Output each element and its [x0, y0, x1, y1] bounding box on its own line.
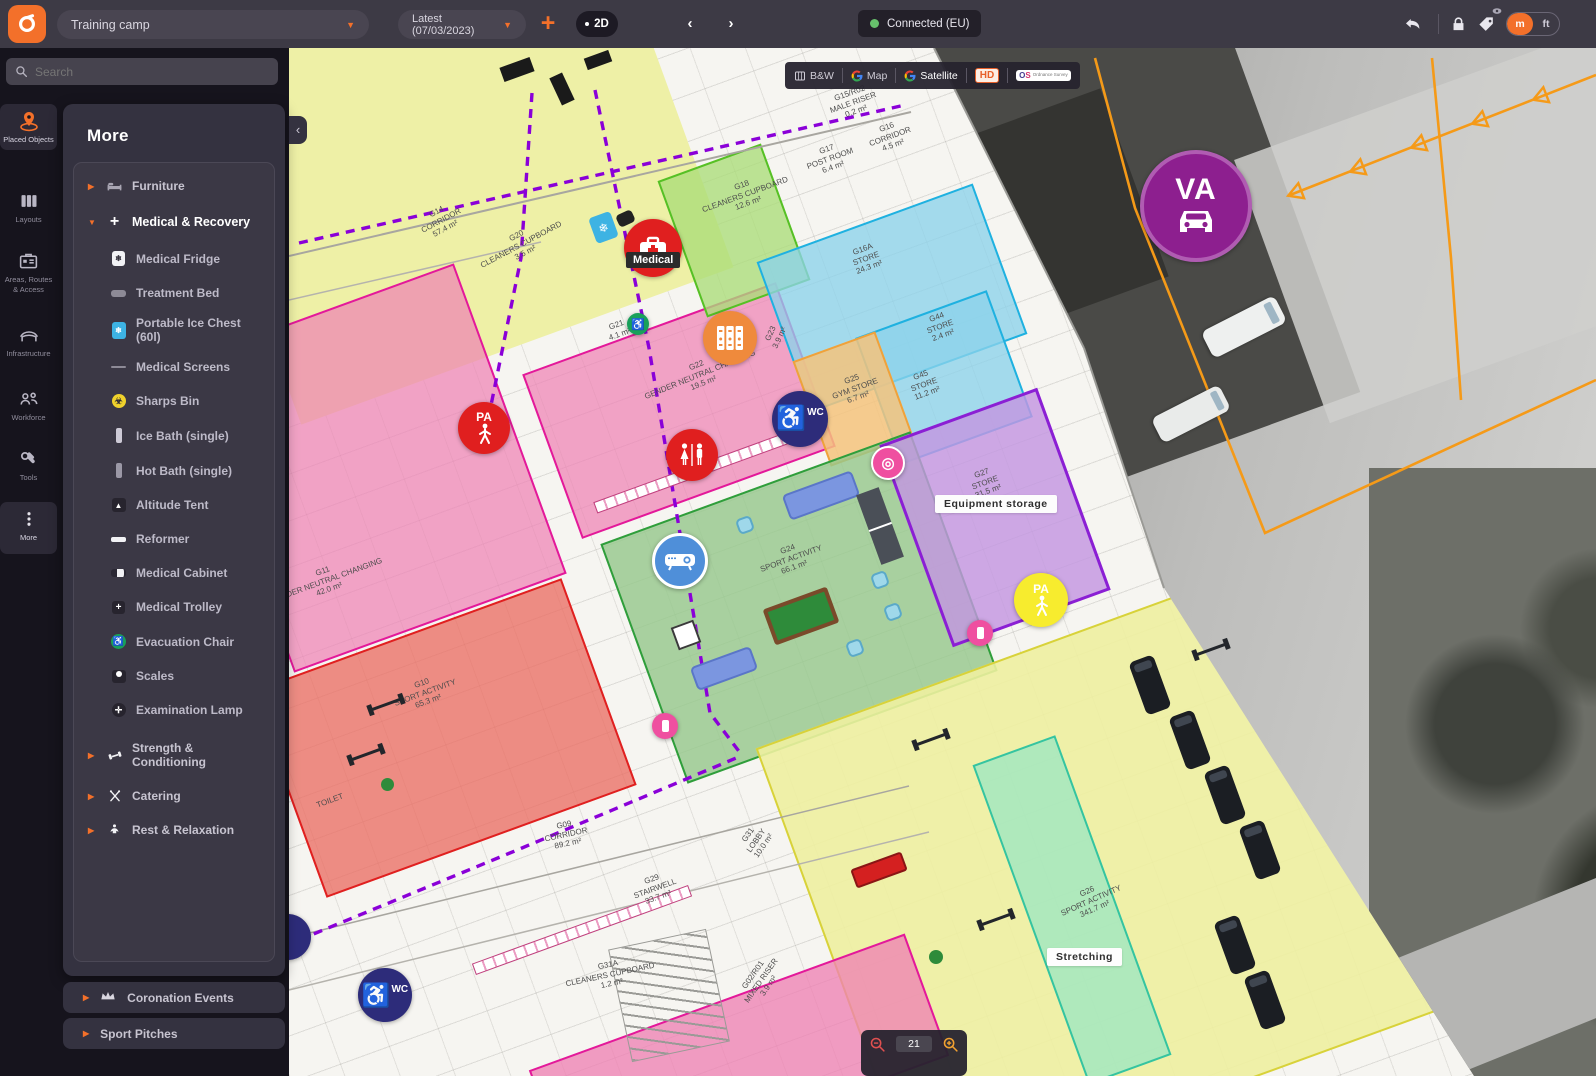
add-version-button[interactable]: +: [534, 8, 562, 38]
undo-icon: [1404, 15, 1423, 34]
item-medical-cabinet[interactable]: Medical Cabinet: [74, 556, 274, 590]
item-label: Sharps Bin: [136, 394, 199, 408]
layer-hd-button[interactable]: HD: [975, 68, 999, 83]
category-rest-relaxation[interactable]: ▶ Rest & Relaxation: [74, 813, 274, 847]
item-altitude-tent[interactable]: ▲ Altitude Tent: [74, 488, 274, 522]
item-examination-lamp[interactable]: ✛ Examination Lamp: [74, 693, 274, 727]
panel-title: More: [87, 126, 285, 146]
expand-arrow-icon[interactable]: ▶: [88, 792, 97, 801]
connection-status: Connected (EU): [858, 10, 981, 37]
layer-bw-button[interactable]: B&W: [794, 70, 834, 82]
oneplan-logo-icon: [16, 13, 38, 35]
pa-label: PA: [476, 411, 492, 423]
toilet-point-icon-small[interactable]: [967, 620, 993, 646]
sidebar-item-placed-objects[interactable]: Placed Objects: [0, 104, 57, 150]
rail-label: Placed Objects: [2, 135, 55, 145]
history-back-button[interactable]: ‹: [678, 12, 702, 36]
category-coronation-events[interactable]: ▶ Coronation Events: [63, 982, 285, 1013]
badge-card-icon: [2, 249, 55, 273]
item-label: Examination Lamp: [136, 703, 243, 717]
category-medical-recovery[interactable]: ▼ + Medical & Recovery: [74, 203, 274, 241]
pa-point-icon-red[interactable]: PA: [458, 402, 510, 454]
google-icon: [904, 70, 916, 82]
shower-point-icon[interactable]: ◎: [871, 446, 905, 480]
map-canvas[interactable]: G14 CORRIDOR 57.4 m² G20 CLEANERS CUPBOA…: [289, 48, 1596, 1076]
search-bar[interactable]: [6, 58, 278, 85]
item-medical-trolley[interactable]: + Medical Trolley: [74, 590, 274, 624]
bw-map-icon: [794, 70, 806, 82]
accessible-wc-point-icon-2[interactable]: ♿ WC: [358, 968, 412, 1022]
category-label: Rest & Relaxation: [132, 823, 234, 837]
rail-label: Workforce: [2, 413, 55, 423]
divider: [842, 68, 843, 83]
project-select[interactable]: Training camp ▼: [57, 10, 369, 39]
utensils-icon: [106, 789, 123, 803]
divider: [1007, 68, 1008, 83]
rail-label: Infrastructure: [2, 349, 55, 359]
unit-toggle[interactable]: m ft: [1506, 12, 1560, 36]
wheelchair-icon: ♿: [776, 407, 806, 431]
project-select-value: Training camp: [71, 18, 150, 32]
version-select[interactable]: Latest (07/03/2023) ▼: [398, 10, 526, 39]
map-pin-icon: [2, 109, 55, 133]
wc-label: WC: [807, 407, 824, 418]
chevron-down-icon: ▼: [346, 20, 355, 30]
sidebar-item-infrastructure[interactable]: Infrastructure: [0, 318, 57, 364]
item-sharps-bin[interactable]: ☣ Sharps Bin: [74, 384, 274, 418]
item-portable-ice-chest[interactable]: ❄ Portable Ice Chest (60l): [74, 310, 274, 350]
item-medical-screens[interactable]: Medical Screens: [74, 350, 274, 384]
expand-arrow-icon[interactable]: ▶: [88, 751, 97, 760]
view-mode-toggle[interactable]: 2D: [576, 11, 618, 37]
stretching-label[interactable]: Stretching: [1047, 948, 1122, 966]
lockers-icon: [715, 324, 745, 352]
item-label: Scales: [136, 669, 174, 683]
toilet-glyph: [977, 627, 984, 639]
os-logo-text: Ordnance Survey: [1033, 73, 1068, 78]
search-icon: [15, 65, 28, 78]
category-label: Coronation Events: [127, 991, 234, 1005]
category-label: Furniture: [132, 179, 185, 193]
item-label: Evacuation Chair: [136, 635, 234, 649]
item-label: Medical Cabinet: [136, 566, 227, 580]
rail-label: Tools: [2, 473, 55, 483]
category-label: Medical & Recovery: [132, 215, 250, 229]
item-scales[interactable]: Scales: [74, 659, 274, 693]
eye-icon: [1492, 7, 1502, 15]
sidebar-item-areas-routes-access[interactable]: Areas, Routes & Access: [0, 244, 57, 300]
reformer-icon: [110, 537, 127, 542]
zoom-out-button[interactable]: [869, 1036, 886, 1053]
category-sport-pitches[interactable]: ▶ Sport Pitches: [63, 1018, 285, 1049]
divider: [966, 68, 967, 83]
divider: [895, 68, 896, 83]
expand-arrow-icon[interactable]: ▶: [83, 993, 89, 1002]
medical-point-icon[interactable]: [624, 219, 682, 277]
medical-trolley-icon: +: [110, 601, 127, 614]
layer-satellite-label: Satellite: [920, 70, 957, 82]
ice-chest-icon: ❄: [110, 322, 127, 339]
accessible-wc-point-icon[interactable]: ♿ WC: [772, 391, 828, 447]
category-label: Strength & Conditioning: [132, 741, 256, 769]
item-label: Reformer: [136, 532, 189, 546]
unit-m-option[interactable]: m: [1507, 13, 1533, 35]
treatment-bed-icon: [110, 290, 127, 297]
expand-arrow-icon[interactable]: ▶: [88, 826, 97, 835]
layer-os-button[interactable]: OS Ordnance Survey: [1016, 70, 1071, 81]
left-sidebar: Placed Objects Layouts Areas, Routes & A…: [0, 48, 289, 1076]
divider: [1438, 14, 1439, 34]
sidebar-item-layouts[interactable]: Layouts: [0, 184, 57, 230]
sidebar-item-tools[interactable]: Tools: [0, 442, 57, 488]
tags-visibility-button[interactable]: [1474, 12, 1498, 36]
toilet-point-icon-small[interactable]: [652, 713, 678, 739]
dumbbell-icon: [106, 750, 123, 761]
rail-label: Layouts: [2, 215, 55, 225]
google-icon: [851, 70, 863, 82]
scales-icon: [110, 670, 127, 683]
wc-label: WC: [391, 984, 408, 995]
altitude-tent-icon: ▲: [110, 498, 127, 512]
more-panel: More ▶ Furniture ▼ + Medical & Recovery …: [63, 104, 285, 976]
layer-bw-label: B&W: [810, 70, 834, 82]
pa-point-icon-yellow[interactable]: PA: [1014, 573, 1068, 627]
relaxation-icon: [106, 823, 123, 837]
item-label: Treatment Bed: [136, 286, 219, 300]
category-label: Sport Pitches: [100, 1027, 177, 1041]
sidebar-item-workforce[interactable]: Workforce: [0, 382, 57, 428]
top-bar: Training camp ▼ Latest (07/03/2023) ▼ + …: [0, 0, 1596, 48]
item-label: Medical Fridge: [136, 252, 220, 266]
category-tree: ▶ Furniture ▼ + Medical & Recovery ❄ Med…: [73, 162, 275, 962]
history-forward-button[interactable]: ›: [719, 12, 743, 36]
app-logo[interactable]: [8, 5, 46, 43]
nav-rail: Placed Objects Layouts Areas, Routes & A…: [0, 96, 57, 1076]
undo-button[interactable]: [1401, 12, 1425, 36]
chevron-down-icon: ▼: [503, 20, 512, 30]
car-icon: [1172, 207, 1220, 237]
rail-label: Areas, Routes & Access: [2, 275, 55, 295]
walking-person-icon: [476, 423, 493, 445]
category-catering[interactable]: ▶ Catering: [74, 779, 274, 813]
item-treatment-bed[interactable]: Treatment Bed: [74, 276, 274, 310]
medical-cross-icon: +: [106, 213, 123, 231]
tent-icon: [2, 323, 55, 347]
item-medical-fridge[interactable]: ❄ Medical Fridge: [74, 241, 274, 276]
item-label: Medical Screens: [136, 360, 230, 374]
crown-icon: [100, 990, 116, 1005]
exercise-ball: [381, 778, 394, 791]
zoom-level-value[interactable]: 21: [896, 1036, 932, 1052]
item-evacuation-chair[interactable]: ♿ Evacuation Chair: [74, 624, 274, 659]
ice-bath-icon: [110, 428, 127, 443]
hot-bath-icon: [110, 463, 127, 478]
projector-point-icon[interactable]: [652, 533, 708, 589]
exercise-ball: [929, 950, 943, 964]
item-label: Hot Bath (single): [136, 464, 232, 478]
tools-icon: [2, 447, 55, 471]
item-label: Portable Ice Chest (60l): [136, 316, 266, 344]
category-label: Catering: [132, 789, 181, 803]
search-input[interactable]: [35, 65, 255, 79]
male-female-icon: [677, 442, 707, 468]
expand-arrow-icon[interactable]: ▶: [83, 1029, 89, 1038]
rail-label: More: [2, 533, 55, 543]
va-label: VA: [1175, 175, 1216, 205]
panel-collapse-button[interactable]: ‹: [289, 116, 307, 144]
more-dots-icon: [2, 507, 55, 531]
tag-icon: [1477, 15, 1496, 34]
va-point-icon[interactable]: VA: [1140, 150, 1252, 262]
connection-label: Connected (EU): [887, 18, 969, 30]
medical-label: Medical: [626, 252, 680, 268]
layouts-icon: [2, 189, 55, 213]
furniture-icon: [106, 180, 123, 192]
category-furniture[interactable]: ▶ Furniture: [74, 169, 274, 203]
lockers-point-icon[interactable]: [703, 311, 757, 365]
map-zoom-control: 21: [861, 1030, 967, 1076]
equipment-storage-label[interactable]: Equipment storage: [935, 495, 1057, 513]
layer-map-label: Map: [867, 70, 887, 82]
layer-map-button[interactable]: Map: [851, 70, 887, 82]
lock-button[interactable]: [1446, 12, 1470, 36]
examination-lamp-icon: ✛: [110, 703, 127, 717]
wheelchair-icon: ♿: [362, 984, 391, 1007]
item-label: Medical Trolley: [136, 600, 222, 614]
item-ice-bath[interactable]: Ice Bath (single): [74, 418, 274, 453]
unit-ft-option[interactable]: ft: [1533, 13, 1559, 35]
sidebar-item-more[interactable]: More: [0, 502, 57, 554]
item-reformer[interactable]: Reformer: [74, 522, 274, 556]
view-mode-dot: [585, 22, 589, 26]
toilets-point-icon[interactable]: [666, 429, 718, 481]
people-icon: [2, 387, 55, 411]
os-logo: OS: [1019, 71, 1031, 80]
evacuation-chair-icon: ♿: [110, 634, 127, 649]
medical-screens-icon: [110, 366, 127, 368]
item-label: Ice Bath (single): [136, 429, 229, 443]
item-hot-bath[interactable]: Hot Bath (single): [74, 453, 274, 488]
zoom-in-button[interactable]: [942, 1036, 959, 1053]
medical-fridge-icon: ❄: [110, 251, 127, 266]
lock-icon: [1450, 16, 1467, 33]
item-label: Altitude Tent: [136, 498, 208, 512]
layer-satellite-button[interactable]: Satellite: [904, 70, 957, 82]
toilet-glyph: [662, 720, 669, 732]
expand-arrow-icon[interactable]: ▶: [88, 182, 97, 191]
projector-icon: [664, 551, 696, 571]
connected-dot-icon: [870, 19, 879, 28]
sharps-bin-icon: ☣: [110, 394, 127, 408]
version-select-value: Latest (07/03/2023): [412, 13, 503, 37]
view-mode-label: 2D: [594, 18, 609, 30]
evacuation-chair-point-icon[interactable]: ♿: [627, 313, 649, 335]
category-strength-conditioning[interactable]: ▶ Strength & Conditioning: [74, 727, 274, 779]
pa-label: PA: [1033, 583, 1049, 595]
collapse-arrow-icon[interactable]: ▼: [88, 218, 97, 227]
medical-cabinet-icon: [110, 569, 127, 577]
map-layer-controls: B&W Map Satellite HD OS: [785, 62, 1080, 89]
walking-person-icon: [1033, 595, 1050, 617]
